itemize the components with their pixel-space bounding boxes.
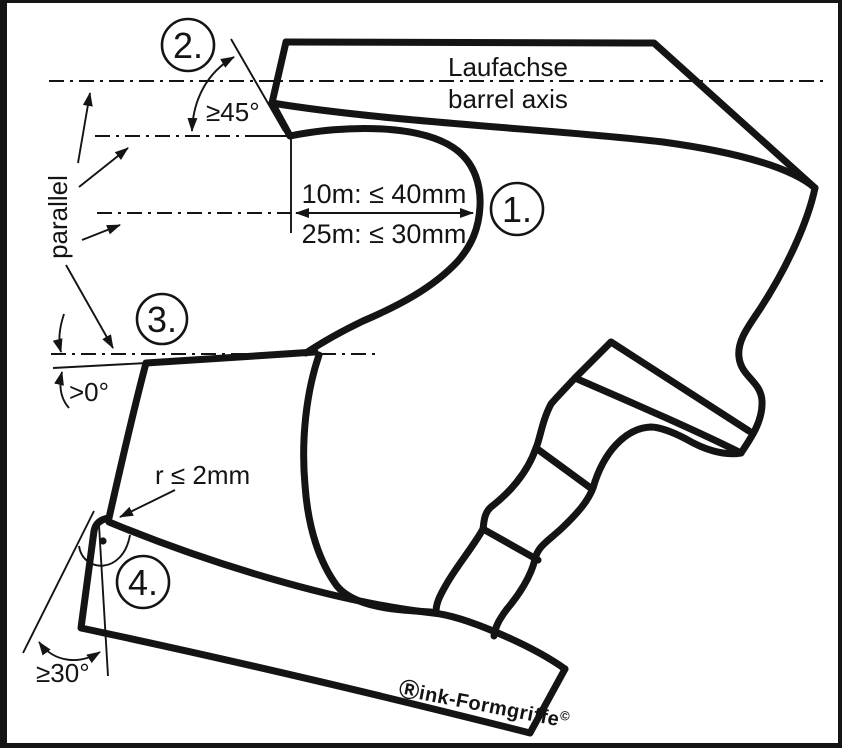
parallel-arrow-1 [78, 93, 90, 163]
angle-0-arc-lower [60, 372, 69, 408]
dimension-10m-label: 10m: ≤ 40mm [302, 179, 467, 209]
callout-label-4: 4. [128, 562, 158, 603]
parallel-arrow-3 [82, 225, 120, 240]
angle-30-label: ≥30° [36, 658, 90, 688]
callout-label-3: 3. [147, 299, 177, 340]
parallel-label: parallel [43, 175, 73, 259]
barrel-axis-label-en: barrel axis [448, 84, 568, 114]
radius-label: r ≤ 2mm [155, 460, 250, 490]
grip-outline [81, 42, 815, 733]
barrel-axis-label-de: Laufachse [448, 52, 568, 82]
angle-45-label: ≥45° [206, 97, 260, 127]
thumb-shelf-extension-line [53, 363, 147, 368]
inner-front-curve [304, 355, 431, 612]
grip-diagram-canvas: 2. 1. 3. 4. Laufachse barrel axis 10m: ≤… [7, 3, 838, 743]
angle-4-vertex-dot [99, 537, 106, 544]
parallel-arrow-2 [79, 148, 128, 187]
band-top-edge [611, 342, 749, 431]
heel-vertical-line [99, 525, 108, 676]
angle-0-arc-upper [59, 314, 64, 352]
angle-0-label: >0° [69, 377, 109, 407]
watermark-copyright: © [559, 707, 572, 724]
band-bottom-edge [575, 378, 741, 453]
radius-arrow [120, 490, 175, 517]
callout-label-2: 2. [173, 25, 203, 66]
parallel-arrow-4 [66, 265, 113, 348]
frame-left-edge [272, 42, 290, 136]
callout-label-1: 1. [502, 189, 532, 230]
groove-separator-2 [483, 529, 538, 560]
drawing-border: 2. 1. 3. 4. Laufachse barrel axis 10m: ≤… [0, 0, 842, 748]
rule-drawing-page: 2. 1. 3. 4. Laufachse barrel axis 10m: ≤… [0, 0, 842, 754]
groove-separator-1 [536, 448, 592, 489]
dimension-25m-label: 25m: ≤ 30mm [302, 219, 467, 249]
